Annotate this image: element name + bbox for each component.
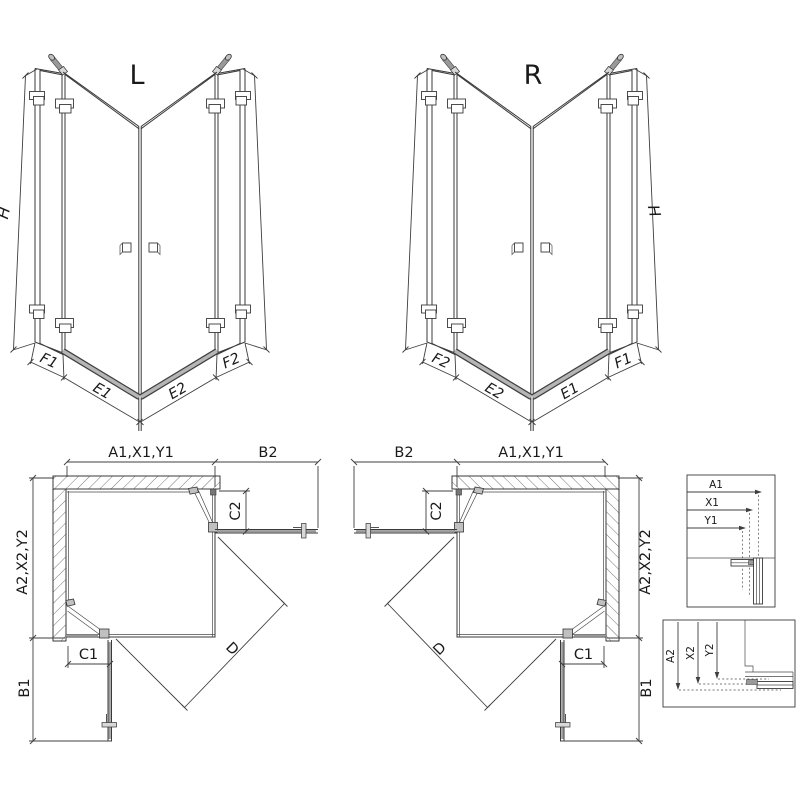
plan-view-right: B2 A1,X1,Y1 A2,X2,Y2 B1 C2 C1 D xyxy=(351,445,655,744)
front-view-right: R H F2 E2 E1 F1 xyxy=(403,53,664,431)
dim-h-right: H xyxy=(644,203,664,218)
dim-b2-right: B2 xyxy=(394,445,413,461)
front-view-left-label: L xyxy=(129,60,144,91)
dim-x2-inset: X2 xyxy=(685,646,697,660)
dim-f1-left: F1 xyxy=(37,350,60,372)
dim-f2-right: F2 xyxy=(429,350,452,372)
dim-h-left: H xyxy=(0,205,14,220)
dim-f2-left: F2 xyxy=(220,350,243,372)
dim-a1x1y1-left: A1,X1,Y1 xyxy=(108,445,174,461)
dim-x1-inset: X1 xyxy=(705,497,719,509)
dim-c1-left: C1 xyxy=(79,647,98,663)
dim-e1-left: E1 xyxy=(90,380,114,403)
front-view-right-label: R xyxy=(524,60,543,91)
dim-e2-left: E2 xyxy=(166,380,190,403)
dim-c2-right: C2 xyxy=(429,501,445,520)
dim-b1-left: B1 xyxy=(17,678,33,697)
dim-c2-left: C2 xyxy=(228,501,244,520)
dim-a1x1y1-right: A1,X1,Y1 xyxy=(498,445,564,461)
profile-wall-section xyxy=(754,558,763,604)
dim-a2x2y2-left: A2,X2,Y2 xyxy=(15,529,31,595)
dim-d-left: D xyxy=(222,640,241,659)
front-view-left: L H F1 E1 E2 F2 xyxy=(0,53,269,431)
dim-f1-right: F1 xyxy=(612,350,635,372)
technical-drawing-page: L H F1 E1 E2 F2 R H F2 E2 E1 F1 A1,X1,Y1… xyxy=(0,0,800,800)
dim-b2-left: B2 xyxy=(258,445,277,461)
plan-view-left: A1,X1,Y1 B2 A2,X2,Y2 B1 C2 C1 D xyxy=(15,445,321,744)
dim-d-right: D xyxy=(431,640,450,659)
dim-y1-inset: Y1 xyxy=(703,515,717,527)
dim-e1-right: E1 xyxy=(558,380,582,403)
detail-inset-horizontal: A1 X1 Y1 xyxy=(687,475,775,607)
dim-a2-inset: A2 xyxy=(665,649,677,663)
dim-a1-inset: A1 xyxy=(709,479,723,491)
dim-c1-right: C1 xyxy=(574,647,593,663)
dim-e2-right: E2 xyxy=(482,380,506,403)
detail-inset-vertical: A2 X2 Y2 xyxy=(663,620,795,707)
dim-b1-right: B1 xyxy=(639,678,655,697)
dim-a2x2y2-right: A2,X2,Y2 xyxy=(638,529,654,595)
drawing-canvas: L H F1 E1 E2 F2 R H F2 E2 E1 F1 A1,X1,Y1… xyxy=(0,0,800,800)
dim-y2-inset: Y2 xyxy=(704,643,716,657)
